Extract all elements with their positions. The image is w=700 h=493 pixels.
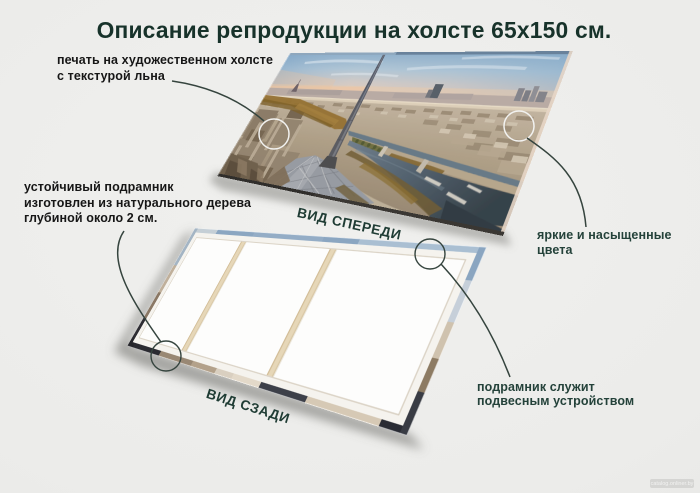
- svg-text:catalog.onliner.by: catalog.onliner.by: [651, 481, 694, 487]
